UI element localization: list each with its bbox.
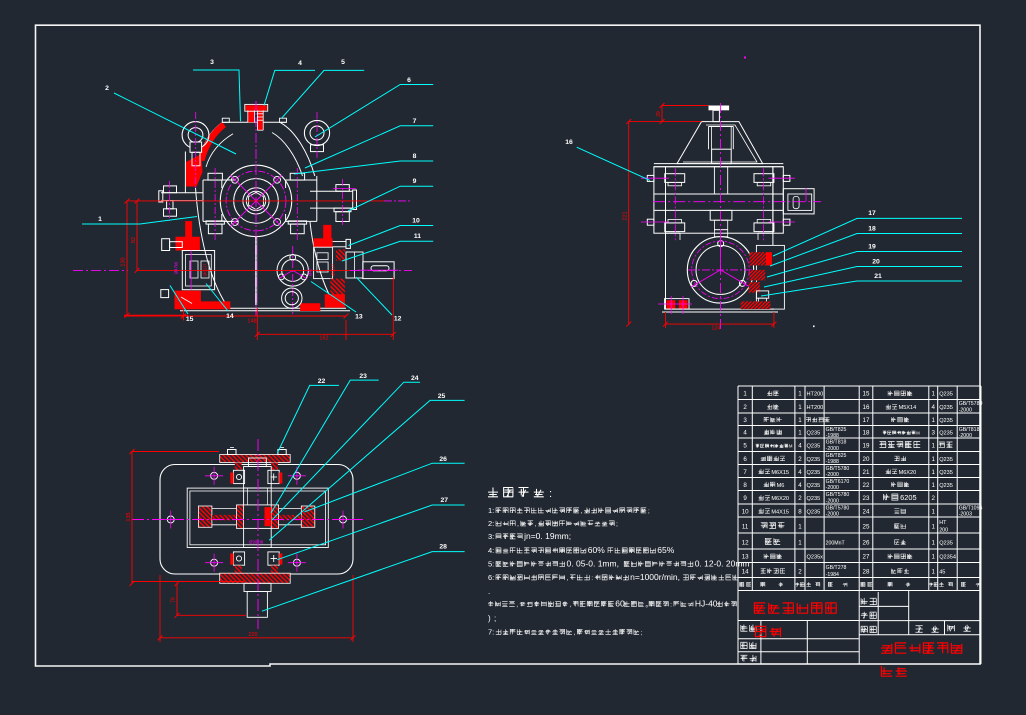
svg-text:200: 200 [939, 528, 948, 534]
svg-text:M: M [789, 444, 793, 449]
svg-text:0. 05-0. 1mm,: 0. 05-0. 1mm, [567, 559, 619, 569]
svg-text:Ø47k6: Ø47k6 [174, 261, 179, 274]
svg-text:220: 220 [248, 632, 257, 638]
svg-text:1: 1 [932, 540, 936, 547]
svg-text:Ø62J7: Ø62J7 [331, 263, 336, 276]
svg-text:GB/T5780: GB/T5780 [826, 492, 850, 498]
svg-text:60%: 60% [588, 545, 605, 555]
svg-text:6: 6 [743, 456, 747, 463]
svg-text:-1988: -1988 [826, 459, 839, 465]
svg-text:162: 162 [319, 336, 328, 342]
svg-text:6205: 6205 [900, 493, 916, 502]
svg-text:9: 9 [743, 495, 747, 502]
svg-text:21: 21 [874, 273, 882, 280]
svg-text:4:: 4: [488, 546, 494, 555]
svg-text:-2000: -2000 [826, 472, 839, 478]
svg-text:1: 1 [798, 391, 802, 398]
svg-text:4: 4 [798, 482, 802, 489]
svg-text:1: 1 [932, 568, 936, 575]
svg-text:Ø62J7: Ø62J7 [203, 263, 208, 276]
svg-text:Q235: Q235 [939, 418, 953, 424]
svg-text:4: 4 [932, 404, 936, 411]
svg-text:;: ; [648, 508, 650, 515]
svg-text:6: 6 [407, 77, 411, 84]
svg-text:20: 20 [872, 259, 880, 266]
svg-text:Q235: Q235 [939, 392, 953, 398]
svg-text:24: 24 [411, 375, 419, 382]
svg-text::: : [591, 575, 593, 582]
svg-text:5: 5 [743, 443, 747, 450]
svg-text:14: 14 [742, 568, 749, 575]
svg-text:GB/T5780: GB/T5780 [826, 505, 850, 511]
svg-text:5: 5 [341, 59, 345, 66]
svg-text:Q235: Q235 [807, 457, 821, 463]
svg-text:18: 18 [863, 430, 870, 437]
svg-text:1: 1 [932, 443, 936, 450]
svg-text:1: 1 [743, 391, 747, 398]
svg-text:6:: 6: [488, 573, 494, 582]
svg-text:3: 3 [932, 430, 936, 437]
svg-text:,: , [535, 521, 537, 528]
svg-text:GB/T5780: GB/T5780 [959, 401, 983, 407]
svg-text:2:: 2: [488, 519, 494, 528]
svg-text:.: . [488, 587, 490, 596]
svg-text:22: 22 [318, 378, 326, 385]
svg-text:,: , [567, 575, 569, 582]
svg-text:M5X14: M5X14 [899, 405, 917, 411]
svg-text:-1984: -1984 [826, 572, 839, 578]
svg-text:Q2354: Q2354 [939, 555, 956, 561]
svg-text:M4X15: M4X15 [771, 509, 789, 515]
svg-text:-1988: -1988 [826, 433, 839, 439]
svg-text:16: 16 [863, 404, 870, 411]
svg-text:Q235: Q235 [807, 444, 821, 450]
svg-text:GB/T6170: GB/T6170 [826, 479, 850, 485]
svg-text:10: 10 [412, 218, 420, 225]
svg-text:2: 2 [105, 85, 109, 92]
svg-text:-2000: -2000 [826, 446, 839, 452]
svg-text:13: 13 [742, 554, 749, 561]
svg-text:Q235: Q235 [807, 509, 821, 515]
svg-text:Q235: Q235 [939, 470, 953, 476]
svg-text:,: , [581, 508, 583, 515]
svg-text:11: 11 [742, 524, 749, 531]
svg-text:130: 130 [121, 257, 127, 266]
svg-text:1: 1 [798, 524, 802, 531]
svg-text:17: 17 [863, 417, 870, 424]
svg-text:Q235x: Q235x [807, 555, 824, 561]
svg-text:76: 76 [170, 597, 176, 603]
svg-text:GB/T1096: GB/T1096 [959, 505, 983, 511]
svg-text:GB/T825: GB/T825 [826, 453, 847, 459]
svg-text:1: 1 [932, 508, 936, 515]
svg-text:135: 135 [126, 512, 132, 521]
svg-text:M6X15: M6X15 [771, 470, 789, 476]
svg-text:M6X20: M6X20 [899, 470, 917, 476]
svg-text:1: 1 [798, 404, 802, 411]
svg-text:HT200: HT200 [807, 392, 824, 398]
svg-text:1: 1 [932, 482, 936, 489]
svg-text:8: 8 [743, 482, 747, 489]
svg-text:-2000: -2000 [826, 499, 839, 505]
svg-text:Q235: Q235 [939, 431, 953, 437]
svg-text:148: 148 [247, 319, 256, 325]
svg-text:12: 12 [742, 540, 749, 547]
svg-text:14: 14 [226, 313, 234, 320]
svg-text:Q235: Q235 [807, 431, 821, 437]
svg-text:HT200: HT200 [807, 405, 824, 411]
svg-text:45: 45 [939, 569, 945, 575]
svg-text:): ) [488, 614, 491, 623]
svg-text:15: 15 [863, 391, 870, 398]
svg-text:Q235: Q235 [807, 483, 821, 489]
svg-text:HT: HT [939, 520, 947, 526]
svg-text:11: 11 [414, 233, 421, 240]
svg-text:29: 29 [656, 111, 662, 117]
svg-text:-2000: -2000 [959, 408, 972, 414]
svg-text:M6X20: M6X20 [771, 496, 789, 502]
svg-text:23: 23 [863, 495, 870, 502]
svg-text:Q235: Q235 [939, 483, 953, 489]
svg-text:;: ; [494, 614, 496, 623]
svg-text:1: 1 [932, 391, 936, 398]
svg-text:2: 2 [798, 456, 802, 463]
svg-text:,: , [517, 521, 519, 528]
svg-text:23: 23 [359, 373, 367, 380]
svg-text:-2000: -2000 [826, 512, 839, 518]
svg-text:M: M [916, 431, 920, 436]
svg-text:200MnT: 200MnT [826, 541, 846, 547]
svg-text:21: 21 [863, 469, 870, 476]
svg-text:27: 27 [441, 497, 449, 504]
svg-text:1:: 1: [488, 506, 494, 515]
svg-text:1: 1 [798, 430, 802, 437]
svg-text:n=1000r/min,: n=1000r/min, [630, 572, 680, 582]
svg-text:18: 18 [868, 226, 876, 233]
svg-text:19: 19 [868, 244, 876, 251]
svg-text::: : [549, 488, 552, 500]
svg-text:60: 60 [615, 599, 625, 609]
svg-text:20: 20 [863, 456, 870, 463]
svg-text:9: 9 [413, 178, 417, 185]
svg-text:2: 2 [798, 568, 802, 575]
svg-text:26: 26 [439, 456, 447, 463]
svg-text:,: , [516, 602, 518, 609]
svg-text:GB/T5780: GB/T5780 [826, 466, 850, 472]
svg-text:1: 1 [932, 554, 936, 561]
svg-text:16: 16 [565, 139, 573, 146]
svg-text:65%: 65% [657, 545, 674, 555]
svg-text:,: , [574, 630, 576, 637]
svg-text:Q235: Q235 [807, 496, 821, 502]
svg-text:,: , [569, 602, 571, 609]
svg-text:M6: M6 [777, 483, 785, 489]
svg-text:4: 4 [798, 469, 802, 476]
svg-text:Q235: Q235 [807, 470, 821, 476]
svg-text:2: 2 [798, 495, 802, 502]
svg-text:24: 24 [863, 508, 870, 515]
svg-text:;: ; [616, 521, 618, 528]
svg-text:25: 25 [863, 524, 870, 531]
svg-text:1: 1 [932, 456, 936, 463]
svg-text:124: 124 [711, 326, 720, 332]
svg-text:25: 25 [438, 393, 446, 400]
svg-text:8: 8 [798, 508, 802, 515]
svg-text:7: 7 [413, 118, 417, 125]
svg-text:1: 1 [932, 417, 936, 424]
svg-text:1: 1 [932, 469, 936, 476]
svg-text:1: 1 [798, 540, 802, 547]
svg-text:HJ-40: HJ-40 [695, 599, 718, 609]
svg-text:;: ; [641, 630, 643, 637]
svg-text:3: 3 [210, 59, 214, 66]
svg-text:12: 12 [394, 316, 402, 323]
svg-text:GB/T278: GB/T278 [826, 565, 847, 571]
svg-text:GB/T818: GB/T818 [826, 440, 847, 446]
svg-text:1: 1 [932, 524, 936, 531]
svg-text:7:: 7: [488, 628, 494, 637]
svg-text:8: 8 [413, 153, 417, 160]
svg-text:10: 10 [742, 508, 749, 515]
svg-text:Q235: Q235 [939, 405, 953, 411]
svg-text:Ø47: Ø47 [308, 267, 313, 276]
svg-text:-2000: -2000 [959, 433, 972, 439]
svg-text:Q235: Q235 [939, 457, 953, 463]
svg-text:17: 17 [868, 210, 876, 217]
svg-text:4: 4 [798, 443, 802, 450]
svg-text:13: 13 [355, 314, 363, 321]
svg-text:-2000: -2000 [826, 485, 839, 491]
svg-text::: : [670, 602, 672, 609]
svg-text:1: 1 [98, 216, 102, 223]
svg-text:4: 4 [298, 60, 302, 67]
svg-text:28: 28 [863, 568, 870, 575]
svg-text:19: 19 [863, 443, 870, 450]
svg-text:jn=0. 19mm;: jn=0. 19mm; [523, 531, 571, 541]
svg-text:7: 7 [743, 469, 747, 476]
svg-text:-2003: -2003 [959, 512, 972, 518]
svg-text:22: 22 [863, 482, 870, 489]
svg-text:221: 221 [623, 211, 629, 220]
svg-text:3:: 3: [488, 532, 494, 541]
svg-text:28: 28 [439, 544, 447, 551]
svg-text:3: 3 [743, 417, 747, 424]
svg-text:Ø28H8: Ø28H8 [249, 540, 264, 545]
svg-text:26: 26 [863, 540, 870, 547]
svg-text:27: 27 [863, 554, 870, 561]
svg-text:2: 2 [743, 404, 747, 411]
svg-text:Q235: Q235 [939, 541, 953, 547]
svg-text:5:: 5: [488, 560, 494, 569]
svg-text:82: 82 [131, 237, 137, 243]
svg-text:15: 15 [186, 316, 194, 323]
svg-text:1: 1 [798, 417, 802, 424]
svg-text:4: 4 [743, 430, 747, 437]
svg-text:2: 2 [932, 495, 936, 502]
